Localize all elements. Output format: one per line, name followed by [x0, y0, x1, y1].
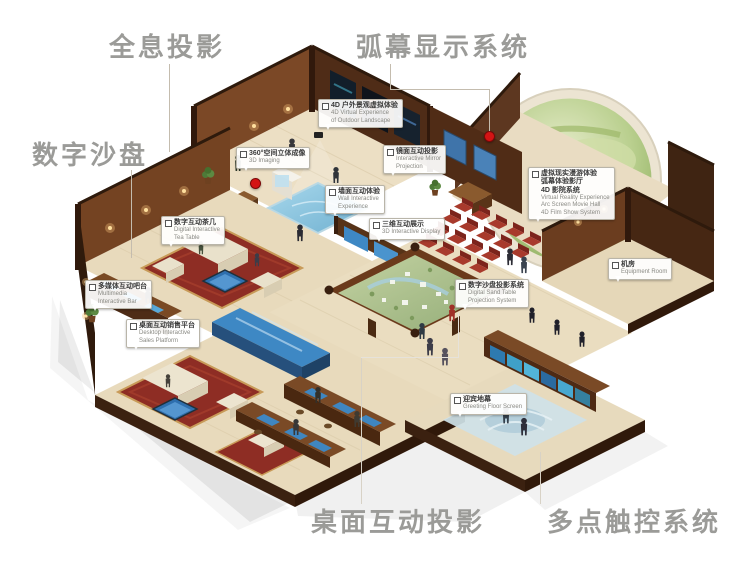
callout-en-label: Wall Interactive — [338, 196, 380, 203]
checkbox-icon — [165, 220, 172, 227]
callout-en-label: Multimedia — [98, 291, 147, 298]
callout-zh-label: 数字互动茶几 — [174, 219, 216, 227]
checkbox-icon — [240, 151, 247, 158]
label-holographic-projection: 全息投影 — [109, 27, 225, 64]
callout-dome-cinema-system: 虚拟现实漫游体验 弧幕体验影厅 4D 影院系统 Virtual Reality … — [528, 167, 615, 220]
label-digital-sandbox: 数字沙盘 — [32, 135, 148, 172]
red-marker-dot-hologram — [250, 178, 261, 189]
callout-en-label: Interactive Mirror — [396, 156, 441, 163]
label-arc-screen-display-system: 弧幕显示系统 — [356, 27, 530, 64]
leader-line-multitouch — [540, 452, 541, 504]
callout-en-label: Interactive Bar — [98, 299, 147, 306]
callout-desktop-sales-platform: 桌面互动销售平台 Desktop Interactive Sales Platf… — [126, 319, 200, 348]
callout-zh-label: 机房 — [621, 261, 635, 269]
callout-sand-table-projection: 数字沙盘投影系统 Digital Sand Table Projection S… — [455, 279, 529, 308]
label-multitouch-system: 多点触控系统 — [547, 502, 721, 539]
callout-wall-interactive: 墙面互动体验 Wall Interactive Experience — [325, 185, 385, 214]
callout-equipment-room: 机房 Equipment Room — [608, 258, 672, 280]
callout-zh-label: 360°空间立体成像 — [249, 150, 305, 158]
red-marker-dot-dome — [484, 131, 495, 142]
callout-en-label: 3D Imaging — [249, 158, 305, 165]
label-desktop-interactive-projection: 桌面互动投影 — [311, 502, 485, 539]
callout-en-label: Virtual Reality Experience — [541, 195, 610, 202]
callout-interactive-tea-table: 数字互动茶几 Digital Interactive Tea Table — [161, 216, 225, 245]
callout-zh-label: 墙面互动体验 — [338, 188, 380, 196]
leader-line-arc-screen-h — [390, 89, 490, 90]
annotated-showroom-infographic: 全息投影 弧幕显示系统 数字沙盘 桌面互动投影 多点触控系统 4D 户外景观虚拟… — [0, 0, 741, 563]
callout-4d-outdoor-experience: 4D 户外景观虚拟体验 4D Virtual Experience of Out… — [318, 99, 403, 128]
leader-line-desktop-projection — [361, 357, 362, 504]
callout-en-label: Experience — [338, 204, 380, 211]
checkbox-icon — [612, 262, 619, 269]
callout-en-label: of Outdoor Landscape — [331, 118, 398, 125]
leader-line-arc-screen-v2 — [489, 89, 490, 133]
checkbox-icon — [387, 149, 394, 156]
leader-line-digital-sandbox — [131, 170, 132, 258]
callout-en-label: Projection — [396, 164, 441, 171]
callout-en-label: 4D Virtual Experience — [331, 110, 398, 117]
checkbox-icon — [459, 283, 466, 290]
callout-mirror-projection: 镜面互动投影 Interactive Mirror Projection — [383, 145, 446, 174]
leader-line-arc-screen-v1 — [390, 64, 391, 90]
callout-en-label: Sales Platform — [139, 338, 195, 345]
callout-zh-label: 三维互动展示 — [382, 221, 424, 229]
leader-line-holographic — [169, 64, 170, 152]
callout-zh-label: 4D 户外景观虚拟体验 — [331, 102, 398, 110]
callout-3d-interactive-display: 三维互动展示 3D Interactive Display — [369, 218, 445, 240]
checkbox-icon — [89, 284, 96, 291]
checkbox-icon — [373, 222, 380, 229]
callout-greeting-floor-screen: 迎宾地幕 Greeting Floor Screen — [450, 393, 527, 415]
callout-en-label: Digital Sand Table — [468, 290, 524, 297]
callout-zh-label: 多媒体互动吧台 — [98, 283, 147, 291]
callout-zh-label: 迎宾地幕 — [463, 396, 491, 404]
callout-en-label: Digital Interactive — [174, 227, 220, 234]
callout-en-label: Greeting Floor Screen — [463, 404, 522, 411]
callout-en-label: Desktop Interactive — [139, 330, 195, 337]
checkbox-icon — [532, 171, 539, 178]
callout-zh-label: 镜面互动投影 — [396, 148, 438, 156]
checkbox-icon — [454, 397, 461, 404]
callout-multimedia-bar: 多媒体互动吧台 Multimedia Interactive Bar — [85, 280, 152, 309]
callout-en-label: Equipment Room — [621, 269, 667, 276]
callout-zh-label: 桌面互动销售平台 — [139, 322, 195, 330]
callout-zh-label: 弧幕体验影厅 — [541, 178, 610, 186]
callout-en-label: 3D Interactive Display — [382, 229, 440, 236]
callout-en-label: 4D Film Show System — [541, 210, 610, 217]
callout-zh-label: 数字沙盘投影系统 — [468, 282, 524, 290]
checkbox-icon — [322, 103, 329, 110]
callout-360-imaging: 360°空间立体成像 3D Imaging — [236, 147, 310, 169]
leader-line-desktop-projection-v2 — [458, 313, 459, 358]
callout-en-label: Arc Screen Movie Hall — [541, 202, 610, 209]
callout-en-label: Projection System — [468, 298, 524, 305]
checkbox-icon — [329, 189, 336, 196]
leader-line-desktop-projection-h — [361, 357, 459, 358]
callout-zh-label: 4D 影院系统 — [541, 187, 610, 195]
callout-en-label: Tea Table — [174, 235, 220, 242]
checkbox-icon — [130, 323, 137, 330]
